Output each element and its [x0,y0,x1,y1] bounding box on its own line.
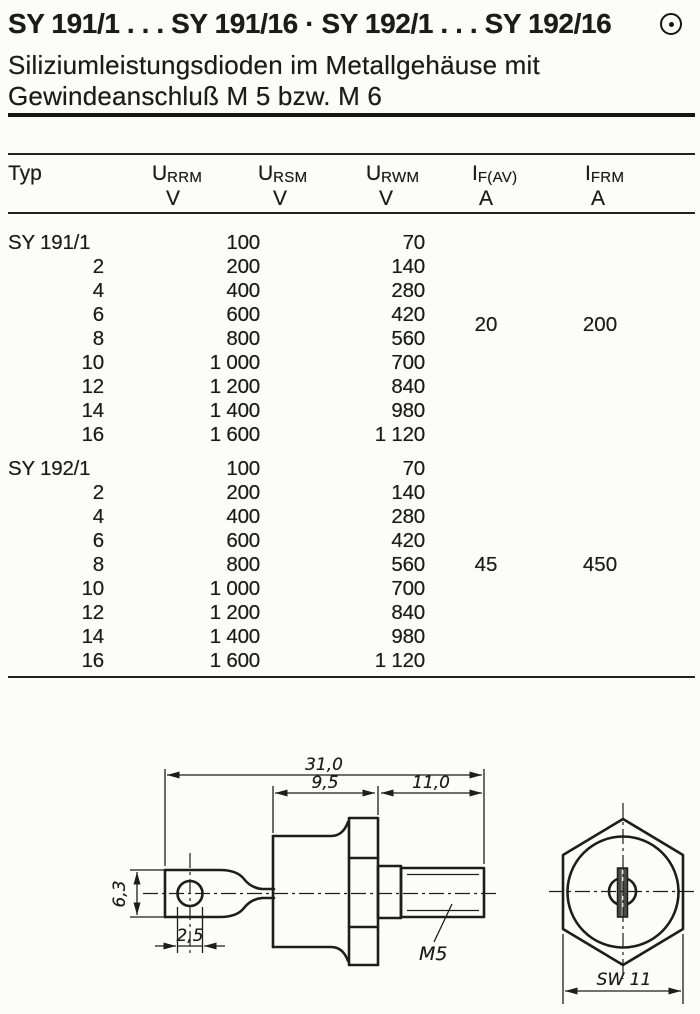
table-group: SY 192/110070220014044002806600420880056… [8,457,700,673]
page-subtitle: Siliziumleistungsdioden im Metallgehäuse… [8,50,540,112]
urrm-cell: 1 400 [104,399,260,423]
typ-cell: 4 [8,505,104,529]
typ-cell: 12 [8,601,104,625]
ifrm-value: 450 [564,553,636,577]
col-unit-urrm: V [166,186,180,212]
table-top-rule [8,153,695,155]
dim-lug-width: 6,3 [110,880,130,907]
typ-cell: 16 [8,423,104,447]
urrm-cell: 800 [104,553,260,577]
typ-cell: 6 [8,303,104,327]
urwm-cell: 420 [260,529,425,553]
typ-cell: 4 [8,279,104,303]
urwm-cell: 840 [260,601,425,625]
urrm-cell: 100 [104,457,260,481]
urwm-cell: 70 [260,231,425,255]
page-title: SY 191/1 . . . SY 191/16 · SY 192/1 . . … [8,8,653,40]
table-row: SY 191/110070 [8,231,700,255]
urrm-cell: 200 [104,255,260,279]
table-row: 141 400980 [8,399,700,423]
subtitle-line-1: Siliziumleistungsdioden im Metallgehäuse… [8,50,540,81]
urwm-cell: 1 120 [260,423,425,447]
table-row: 2200140 [8,481,700,505]
urrm-cell: 1 000 [104,351,260,375]
table-row: 6600420 [8,529,700,553]
typ-cell: 2 [8,255,104,279]
table-row: 161 6001 120 [8,423,700,447]
dim-case-length: 9,5 [311,773,338,793]
col-unit-ifrm: A [591,186,605,212]
table-group: SY 191/110070220014044002806600420880056… [8,231,700,447]
table-row: 4400280 [8,279,700,303]
typ-cell: 14 [8,399,104,423]
if-av-value: 45 [450,553,522,577]
urrm-cell: 200 [104,481,260,505]
typ-cell: 16 [8,649,104,673]
urrm-cell: 100 [104,231,260,255]
table-row: 101 000700 [8,577,700,601]
urwm-cell: 140 [260,255,425,279]
wrench-size-label: SW 11 [597,970,652,990]
urwm-cell: 560 [260,327,425,351]
urrm-cell: 1 000 [104,577,260,601]
col-unit-urwm: V [379,186,393,212]
urrm-cell: 400 [104,505,260,529]
thread-label: M5 [419,943,447,965]
urwm-cell: 70 [260,457,425,481]
table-header-rule [8,212,695,214]
subtitle-line-2: Gewindeanschluß M 5 bzw. M 6 [8,81,540,112]
urwm-cell: 980 [260,399,425,423]
urwm-cell: 560 [260,553,425,577]
urwm-cell: 980 [260,625,425,649]
dim-stud-length: 11,0 [412,773,450,793]
urrm-cell: 800 [104,327,260,351]
urrm-cell: 600 [104,303,260,327]
if-av-value: 20 [450,313,522,337]
typ-cell: SY 191/1 [8,231,104,255]
table-row: 2200140 [8,255,700,279]
spec-table-body: SY 191/110070220014044002806600420880056… [8,231,700,683]
urrm-cell: 1 600 [104,649,260,673]
table-row: 121 200840 [8,375,700,399]
urrm-cell: 400 [104,279,260,303]
col-header-typ: Typ [8,161,42,187]
package-drawings: 31,0 9,5 11,0 6,3 2,5 M5 SW 11 [0,740,700,1014]
urwm-cell: 140 [260,481,425,505]
urwm-cell: 1 120 [260,649,425,673]
urrm-cell: 1 400 [104,625,260,649]
urwm-cell: 700 [260,351,425,375]
typ-cell: SY 192/1 [8,457,104,481]
side-view-drawing: 31,0 9,5 11,0 6,3 2,5 M5 [110,755,500,965]
urwm-cell: 280 [260,505,425,529]
table-row: 161 6001 120 [8,649,700,673]
typ-cell: 8 [8,553,104,577]
datasheet-page: SY 191/1 . . . SY 191/16 · SY 192/1 . . … [0,0,700,1014]
ifrm-value: 200 [564,313,636,337]
urwm-cell: 420 [260,303,425,327]
urwm-cell: 280 [260,279,425,303]
urwm-cell: 840 [260,375,425,399]
urrm-cell: 600 [104,529,260,553]
col-unit-ursm: V [273,186,287,212]
table-row: SY 192/110070 [8,457,700,481]
circled-dot-icon [660,13,682,35]
col-unit-ifav: A [479,186,493,212]
typ-cell: 10 [8,577,104,601]
urrm-cell: 1 600 [104,423,260,447]
hex-flange [349,818,378,965]
end-view-drawing: SW 11 [549,803,697,1004]
title-divider [8,113,695,117]
dim-overall-length: 31,0 [305,755,343,775]
table-row: 141 400980 [8,625,700,649]
typ-cell: 10 [8,351,104,375]
typ-cell: 12 [8,375,104,399]
urrm-cell: 1 200 [104,601,260,625]
table-row: 121 200840 [8,601,700,625]
urrm-cell: 1 200 [104,375,260,399]
typ-cell: 6 [8,529,104,553]
table-row: 101 000700 [8,351,700,375]
dim-hole-diameter: 2,5 [176,926,203,946]
threaded-stud [401,868,484,917]
typ-cell: 14 [8,625,104,649]
table-row: 4400280 [8,505,700,529]
typ-cell: 2 [8,481,104,505]
urwm-cell: 700 [260,577,425,601]
typ-cell: 8 [8,327,104,351]
